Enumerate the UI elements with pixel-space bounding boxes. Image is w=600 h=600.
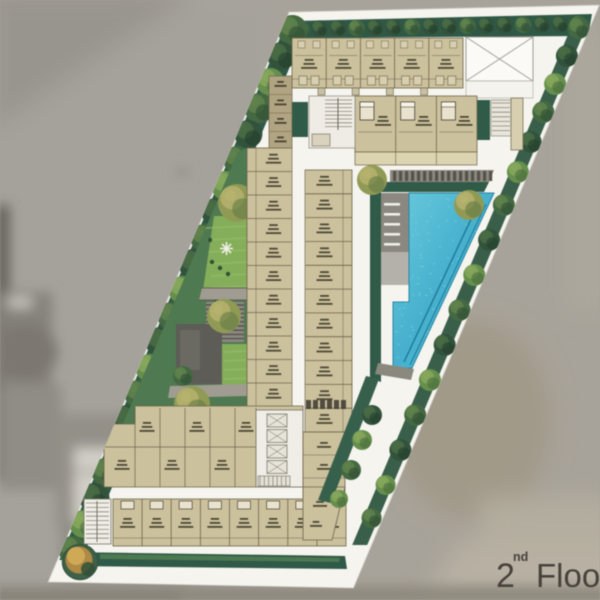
svg-text:nd: nd <box>513 550 528 564</box>
svg-text:Floor: Floor <box>536 557 600 594</box>
